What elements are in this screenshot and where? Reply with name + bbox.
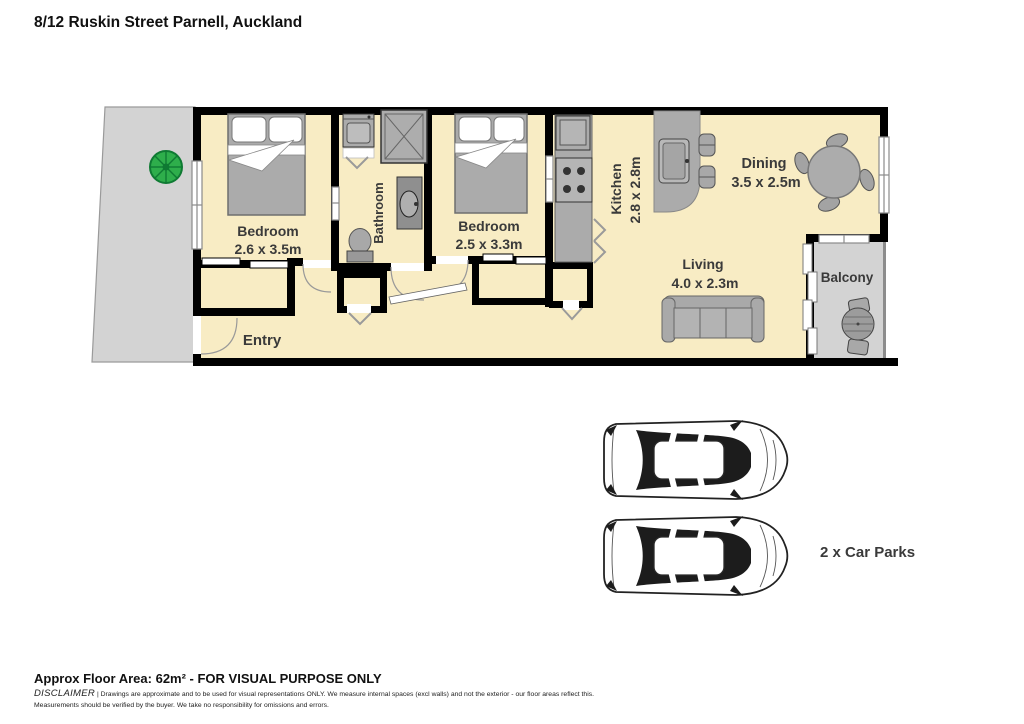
washing-machine-icon <box>343 114 374 147</box>
label-balcony-name: Balcony <box>821 270 874 285</box>
label-kitchen-dims: 2.8 x 2.8m <box>627 157 643 224</box>
label-dining-name: Dining <box>741 156 786 172</box>
label-bedroom1-dims: 2.6 x 3.5m <box>235 241 302 257</box>
label-entry-name: Entry <box>243 332 282 349</box>
disclaimer-text: | Drawings are approximate and to be use… <box>97 691 594 698</box>
bed-icon-bedroom1 <box>228 114 305 215</box>
label-bathroom-name: Bathroom <box>371 182 386 243</box>
label-dining-dims: 3.5 x 2.5m <box>731 175 800 191</box>
car-top-view-2 <box>604 516 787 596</box>
label-bedroom1-name: Bedroom <box>237 223 298 239</box>
floorplan-drawing: Bedroom 2.6 x 3.5m Bathroom Bedroom 2.5 … <box>0 0 1024 724</box>
label-living-name: Living <box>682 256 723 272</box>
floorplan-page: 8/12 Ruskin Street Parnell, Auckland <box>0 0 1024 724</box>
kitchen-counter <box>555 115 592 262</box>
tree-icon <box>150 151 182 183</box>
disclaimer-word: DISCLAIMER <box>34 688 95 699</box>
bed-icon-bedroom2 <box>455 114 527 213</box>
sofa-icon <box>662 296 764 342</box>
label-bedroom2-name: Bedroom <box>458 218 519 234</box>
label-bedroom2-dims: 2.5 x 3.3m <box>456 236 523 252</box>
toilet-icon <box>347 229 373 263</box>
label-kitchen-name: Kitchen <box>608 163 624 214</box>
car-parks: 2 x Car Parks <box>604 420 915 596</box>
vanity-sink-icon <box>397 177 422 229</box>
floor-area-line: Approx Floor Area: 62m² - FOR VISUAL PUR… <box>34 671 994 686</box>
disclaimer-line2: Measurements should be verified by the b… <box>34 701 994 711</box>
shower-icon <box>381 110 427 163</box>
car-parks-label: 2 x Car Parks <box>820 544 915 561</box>
disclaimer-line: DISCLAIMER | Drawings are approximate an… <box>34 689 994 700</box>
car-top-view-1 <box>604 420 787 500</box>
footer: Approx Floor Area: 62m² - FOR VISUAL PUR… <box>34 671 994 711</box>
label-living-dims: 4.0 x 2.3m <box>672 275 739 291</box>
